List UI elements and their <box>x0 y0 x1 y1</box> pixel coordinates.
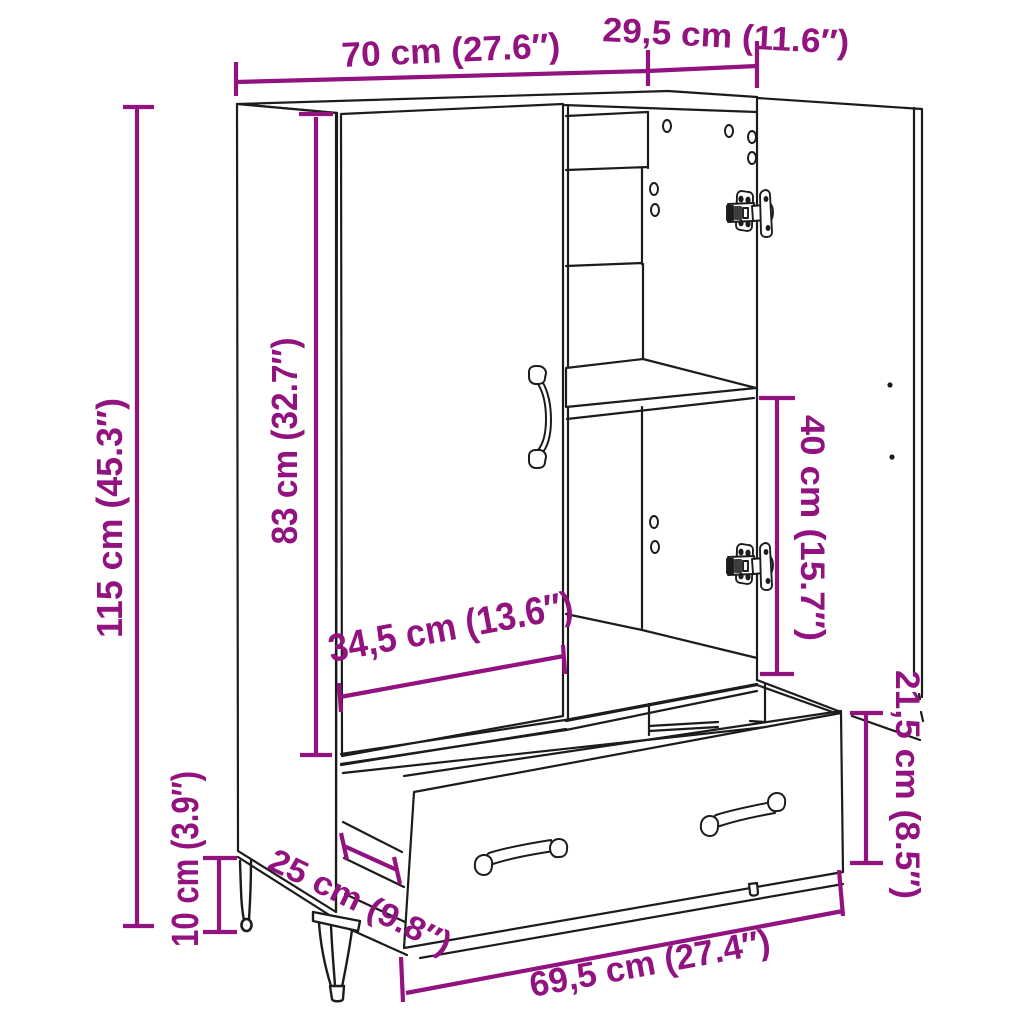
svg-text:83 cm (32.7″): 83 cm (32.7″) <box>264 338 305 545</box>
svg-text:40 cm (15.7″): 40 cm (15.7″) <box>793 415 831 641</box>
svg-text:21,5 cm (8.5″): 21,5 cm (8.5″) <box>888 670 926 899</box>
svg-text:10 cm (3.9″): 10 cm (3.9″) <box>165 771 207 947</box>
svg-text:115 cm (45.3″): 115 cm (45.3″) <box>89 398 130 638</box>
